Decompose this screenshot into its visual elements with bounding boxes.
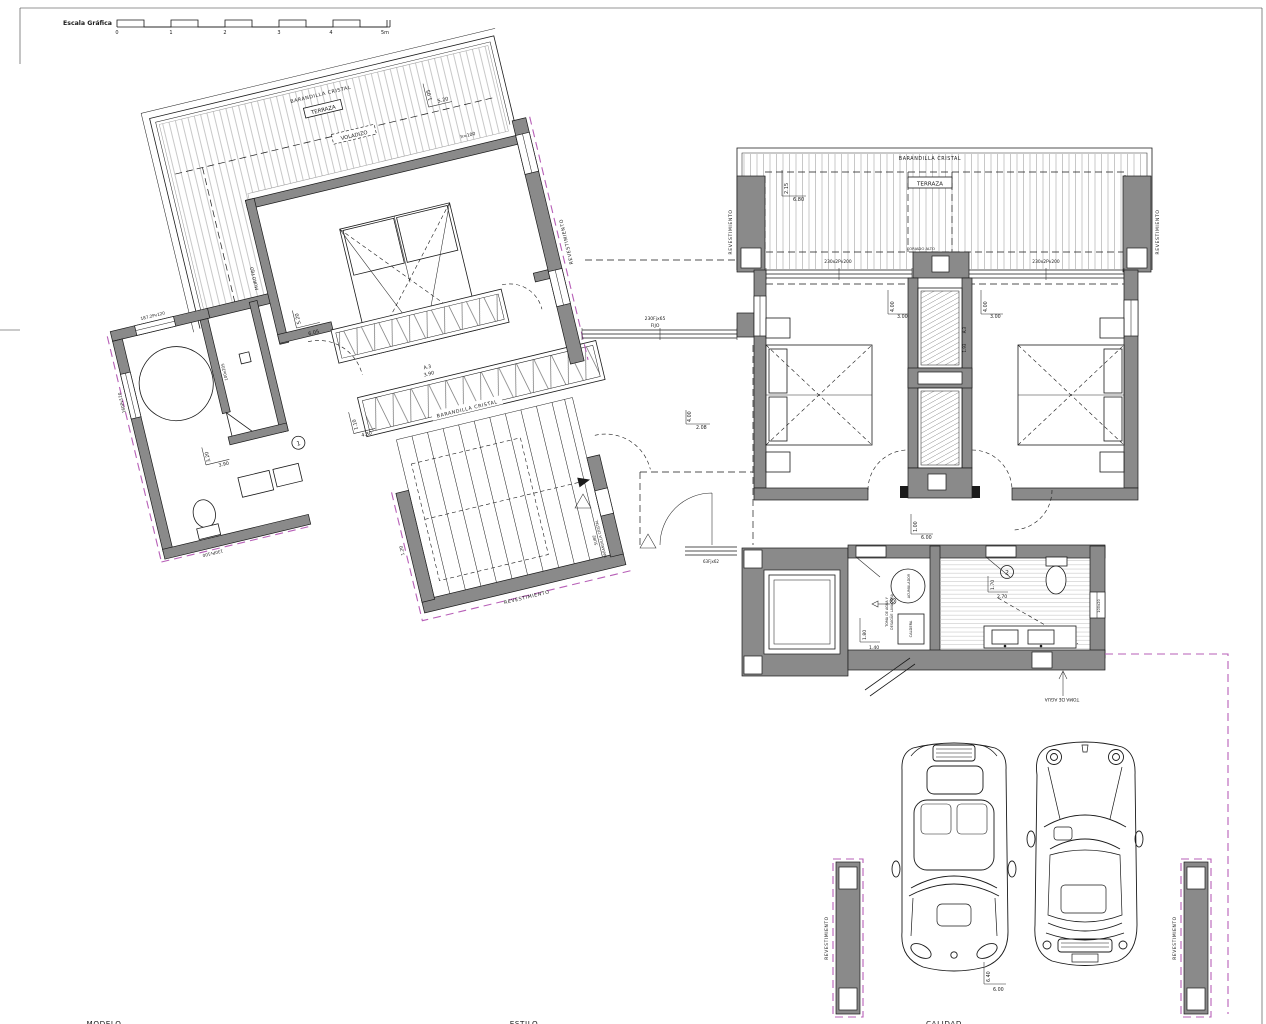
floor-plan-svg: Escala Gráfica 0 1 2 3 4 5m BARANDILLA C… xyxy=(0,0,1266,1024)
right-window-right-label: 230x2Pv200 xyxy=(1032,259,1060,265)
stairs-dim-left: 1.20 xyxy=(398,545,406,556)
left-bedroom-dim-h: 6.05 xyxy=(308,329,320,337)
bath2-dim-h: 2.70 xyxy=(997,594,1007,600)
left-wing-right-wall: REVESTIMIENTO xyxy=(512,114,598,364)
bedroom-left: 4.00 3.00 xyxy=(754,270,913,500)
laundry-note-2: DESAGÜE LAVADORA xyxy=(889,593,894,630)
shaft xyxy=(742,548,848,676)
hall-dim2-v: 1.00 xyxy=(913,521,919,532)
laundry-boiler-label: CALDERA xyxy=(909,620,913,637)
footer-titles: MODELO ESTILO CALIDAD xyxy=(87,1019,963,1024)
pier-label: FORJADO ALTO xyxy=(907,246,935,251)
right-clad-right-label: REVESTIMIENTO xyxy=(1155,209,1161,254)
right-terrace-name-label: TERRAZA xyxy=(916,182,943,188)
bath1-window-left: 160Pv120 xyxy=(117,392,127,414)
garage: REVESTIMIENTO REVESTIMIENTO xyxy=(824,654,1228,1017)
hall-dim-h: 2.08 xyxy=(696,425,707,431)
vanity-1 xyxy=(238,463,303,497)
right-terrace-dim-v: 2.15 xyxy=(784,183,790,194)
laundry-tank-label: ACUMULADOR xyxy=(907,573,911,598)
car-coupe xyxy=(1027,742,1143,966)
bath1-number: 1 xyxy=(296,440,302,448)
footer-calidad: CALIDAD xyxy=(926,1019,962,1024)
garage-clad-left: REVESTIMIENTO xyxy=(824,916,830,959)
scale-tick-1: 1 xyxy=(169,30,172,36)
scale-tick-3: 3 xyxy=(277,30,280,36)
drawing-sheet: Escala Gráfica 0 1 2 3 4 5m BARANDILLA C… xyxy=(0,0,1266,1024)
scale-tick-4: 4 xyxy=(329,30,332,36)
bath2-wall-note: 100x20 xyxy=(1097,599,1101,613)
hall-window-sublabel: FIJO xyxy=(651,323,660,329)
garage-clad-right: REVESTIMIENTO xyxy=(1172,916,1178,959)
wardrobe1-code: A.3 xyxy=(423,364,432,372)
right-clad-left-label: REVESTIMIENTO xyxy=(728,209,734,254)
garage-pillar-left xyxy=(833,859,863,1017)
left-clad-right-label: REVESTIMIENTO xyxy=(558,218,575,265)
toilet-2 xyxy=(1046,557,1067,594)
hall-window-label: 230Fjx65 xyxy=(645,316,666,322)
closet-len: 1.93 xyxy=(962,343,967,352)
garage-dim-v: 6.40 xyxy=(986,971,992,982)
bedroom-right: 4.00 3.00 xyxy=(968,270,1138,530)
laundry-note-1: TOMA DE AGUA Y xyxy=(885,596,889,628)
hall-dim-v: 4.00 xyxy=(687,411,693,422)
right-terrace: BARANDILLA CRISTAL TERRAZA 2.15 6.80 REV… xyxy=(728,148,1161,280)
right-window-left-label: 230x2Pv200 xyxy=(824,259,852,265)
right-terrace-railing-label: BARANDILLA CRISTAL xyxy=(899,156,961,162)
closet-pier: A.3 1.93 xyxy=(900,278,980,498)
right-terrace-dim-h: 6.80 xyxy=(793,197,804,203)
bathroom-1: 3.20 3.90 187.2Pv120 160Pv120 130Pv100 1… xyxy=(101,269,396,569)
vanity-2 xyxy=(984,626,1076,648)
toilet-1 xyxy=(190,497,220,539)
footer-modelo: MODELO xyxy=(87,1019,122,1024)
bedroom-r-dim-h: 3.00 xyxy=(990,314,1001,320)
shower-box xyxy=(239,352,251,364)
left-wing: BARANDILLA CRISTAL TERRAZA VOLADIZO 1.05… xyxy=(55,17,674,682)
scale-bar: Escala Gráfica 0 1 2 3 4 5m xyxy=(63,19,390,36)
scale-tick-2: 2 xyxy=(223,30,226,36)
bed-right xyxy=(1018,345,1124,445)
footer-estilo: ESTILO xyxy=(510,1019,539,1024)
scale-label: Escala Gráfica xyxy=(63,19,112,27)
closet-code: A.3 xyxy=(962,326,967,333)
car-convertible xyxy=(892,743,1016,971)
toma-agua-label: TOMA DE AGUA xyxy=(1045,696,1080,702)
laundry-dim-v: 1.80 xyxy=(862,630,868,640)
wardrobe1-len: 3.90 xyxy=(423,370,435,378)
left-bedroom-dim-v: 5.20 xyxy=(294,313,302,325)
hall-small-window-label: 63Fjx62 xyxy=(703,559,719,564)
bathroom-2: 2 1.70 2.70 100x20 xyxy=(940,546,1105,658)
hall-wardrobe-band: 1.10 4.30 BARANDILLA CRISTAL xyxy=(346,341,605,441)
scale-tick-0: 0 xyxy=(115,30,118,36)
bedroom-l-dim-h: 3.00 xyxy=(897,314,908,320)
bedroom-r-dim-v: 4.00 xyxy=(983,301,989,312)
bath2-dim-v: 1.70 xyxy=(990,580,996,590)
right-wing: BARANDILLA CRISTAL TERRAZA 2.15 6.80 REV… xyxy=(728,148,1228,1017)
bath2-number: 2 xyxy=(1005,570,1009,577)
garage-pillar-right xyxy=(1181,859,1211,1017)
scale-tick-5: 5m xyxy=(381,30,389,36)
bed-left xyxy=(766,345,872,445)
bedroom-l-dim-v: 4.00 xyxy=(890,301,896,312)
hall-dim2-h: 6.00 xyxy=(921,535,932,541)
service-row: TOMA DE AGUA xyxy=(848,650,1105,702)
garage-dim-h: 6.00 xyxy=(993,987,1004,993)
